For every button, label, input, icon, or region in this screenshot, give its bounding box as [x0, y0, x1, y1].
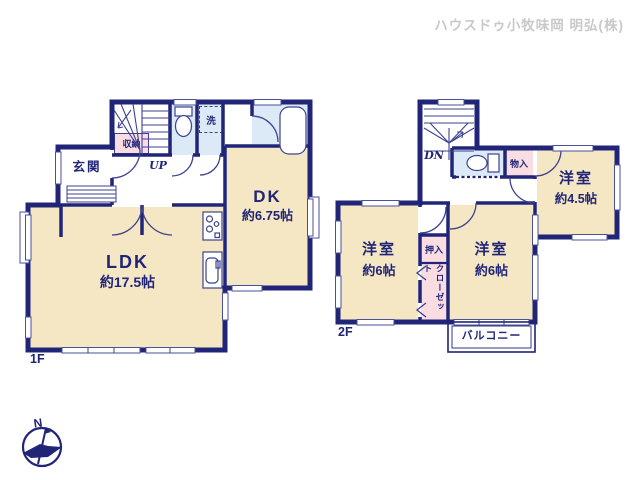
- genkan-label: 玄関: [62, 161, 112, 174]
- stairs-up-label: UP: [146, 160, 170, 172]
- toilet-1f-icon: [175, 107, 192, 116]
- yoshitsu6-right-name-label: 洋室: [450, 242, 533, 258]
- closet-chevron: [417, 303, 426, 317]
- ldk-double-door-left-arc: [112, 205, 142, 235]
- yoshitsu6-right-area-label: 約6帖: [450, 264, 533, 278]
- toilet-2f-icon: [467, 154, 499, 172]
- genkan-step: [67, 186, 116, 202]
- laundry-door-arc: [200, 155, 220, 175]
- bathroom-door-arc: [252, 116, 278, 142]
- yoshitsu6-right-door-arc: [450, 203, 476, 229]
- yoshitsu6-left-door-arc: [420, 207, 446, 233]
- floorplan-linework: [0, 0, 640, 480]
- ldk-double-door-right-arc: [142, 205, 172, 235]
- yoshitsu45-area-label: 約4.5帖: [537, 193, 615, 206]
- compass-icon: [23, 428, 62, 466]
- dk-area-label: 約6.75帖: [227, 209, 308, 223]
- oshiire-chevron: [417, 266, 426, 280]
- wall-2f-exterior: [338, 102, 617, 322]
- ldk-name-label: LDK: [30, 253, 225, 272]
- ldk-area-label: 約17.5帖: [30, 275, 225, 290]
- corridor-45-door-arc: [510, 178, 535, 203]
- dk-name-label: DK: [227, 188, 308, 206]
- floorplan-page: ハウスドゥ小牧味岡 明弘(株) 収納 洗 物入 押入 クローゼット: [0, 0, 640, 480]
- yoshitsu45-name-label: 洋室: [537, 171, 615, 187]
- bathtub-icon: [280, 107, 306, 154]
- floor-1f-label: 1F: [30, 353, 56, 366]
- compass-north-label: N: [29, 416, 47, 431]
- stairs-1f: [114, 104, 170, 155]
- toilet-1f-door-arc: [172, 155, 193, 176]
- floor-2f-label: 2F: [338, 326, 364, 339]
- stairs-dn-label: DN: [421, 150, 447, 162]
- wall-2f-interior: [420, 148, 535, 322]
- yoshitsu6-left-name-label: 洋室: [340, 242, 418, 258]
- yoshitsu6-left-area-label: 約6帖: [340, 264, 418, 278]
- balcony-label: バルコニー: [450, 331, 533, 343]
